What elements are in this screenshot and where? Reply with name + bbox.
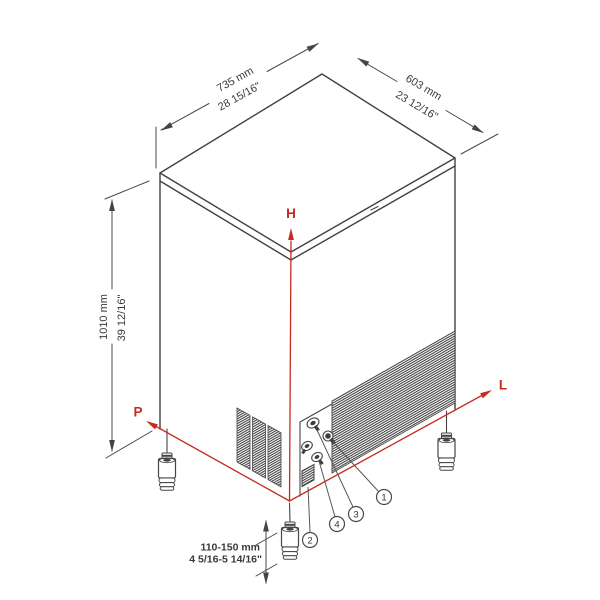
callout-4: 4 <box>330 517 345 532</box>
axis-l-label: L <box>499 378 507 393</box>
foot-left <box>159 429 176 490</box>
dim-feet: 110-150 mm 4 5/16-5 14/16" <box>189 520 277 585</box>
dim-height-mm: 1010 mm <box>98 294 110 340</box>
foot-front <box>282 503 299 559</box>
dim-feet-inch: 4 5/16-5 14/16" <box>189 554 262 566</box>
callout-3: 3 <box>349 507 364 522</box>
callouts: 1 2 3 4 <box>303 490 392 548</box>
callout-2-number: 2 <box>307 535 312 546</box>
dim-height-inch: 39 12/16" <box>116 295 128 342</box>
machine-body <box>160 74 455 501</box>
callout-1: 1 <box>377 490 392 505</box>
dim-feet-mm: 110-150 mm <box>200 542 260 554</box>
dim-height: 1010 mm 39 12/16" <box>98 181 152 458</box>
ice-maker-isometric-drawing: H P L 735 mm 28 15/16" 603 mm 23 12/16" … <box>0 0 600 600</box>
axis-h-label: H <box>286 206 296 221</box>
axis-p-label: P <box>133 405 142 420</box>
callout-4-number: 4 <box>334 519 339 530</box>
foot-right <box>438 411 455 470</box>
dimension-diagram: H P L 735 mm 28 15/16" 603 mm 23 12/16" … <box>0 0 600 600</box>
axis-l-arrow <box>480 387 493 398</box>
callout-3-number: 3 <box>353 509 358 520</box>
axis-p-arrow <box>145 418 158 429</box>
callout-1-number: 1 <box>381 492 386 503</box>
callout-2: 2 <box>303 533 318 548</box>
